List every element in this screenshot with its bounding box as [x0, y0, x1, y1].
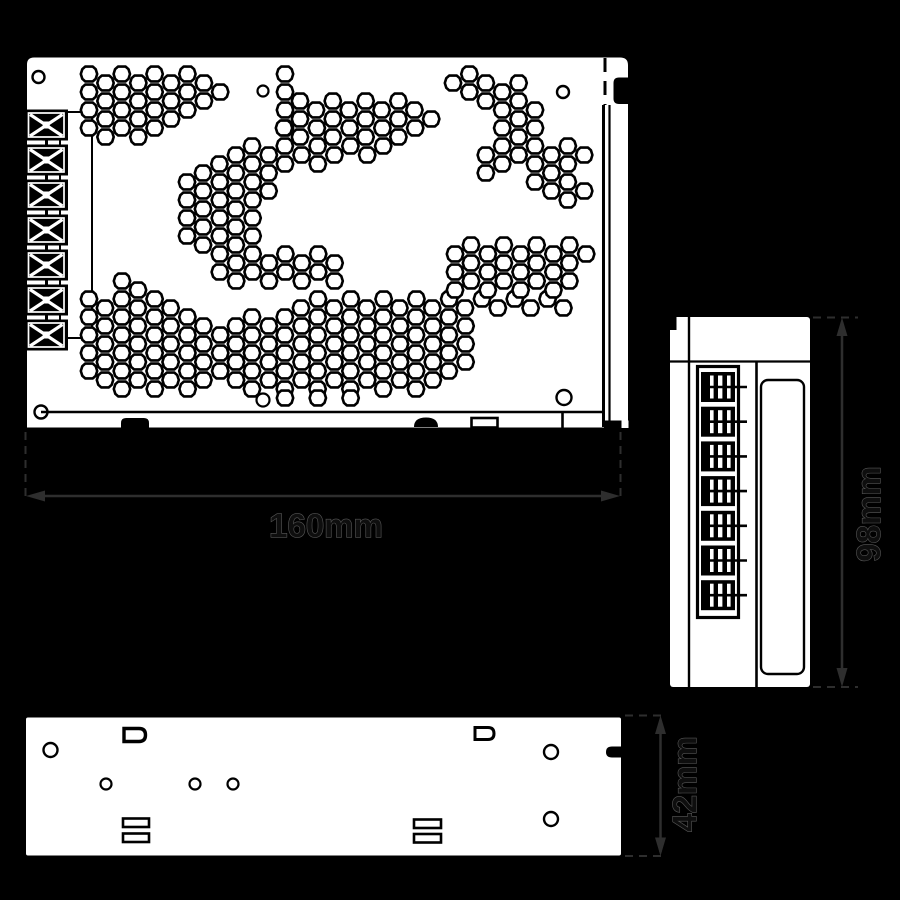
svg-text:42mm: 42mm [666, 736, 703, 831]
svg-text:98mm: 98mm [850, 466, 887, 561]
svg-text:160mm: 160mm [269, 507, 383, 544]
